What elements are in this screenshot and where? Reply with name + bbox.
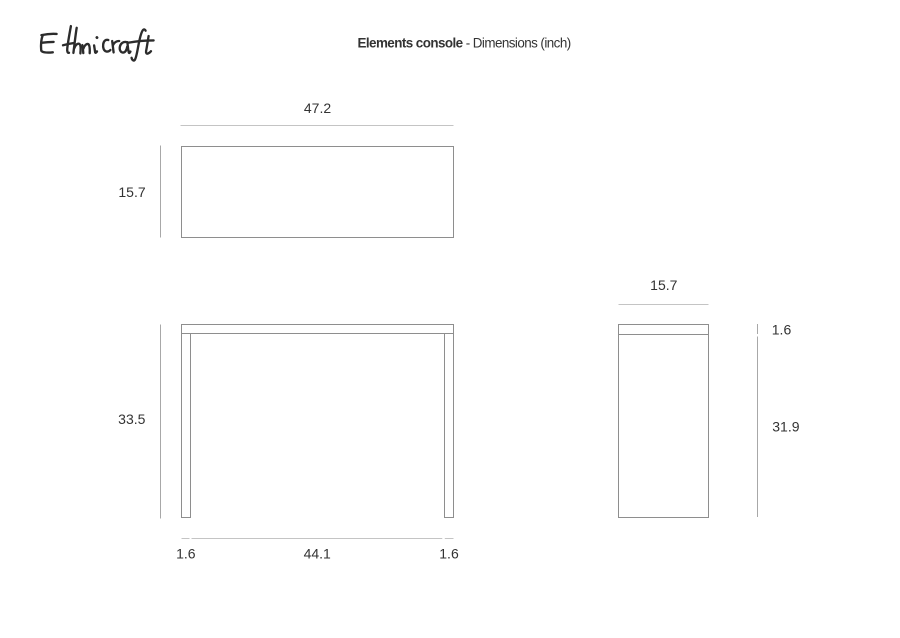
svg-text:Elements console - Dimensions: Elements console - Dimensions (inch) bbox=[358, 36, 571, 51]
svg-text:1.6: 1.6 bbox=[772, 321, 792, 337]
svg-text:44.1: 44.1 bbox=[304, 546, 331, 562]
svg-text:1.6: 1.6 bbox=[439, 546, 459, 562]
svg-text:1.6: 1.6 bbox=[176, 546, 196, 562]
svg-text:33.5: 33.5 bbox=[118, 411, 145, 427]
svg-text:15.7: 15.7 bbox=[118, 184, 145, 200]
svg-text:47.2: 47.2 bbox=[304, 100, 331, 116]
svg-text:15.7: 15.7 bbox=[650, 277, 677, 293]
svg-text:31.9: 31.9 bbox=[772, 419, 799, 435]
